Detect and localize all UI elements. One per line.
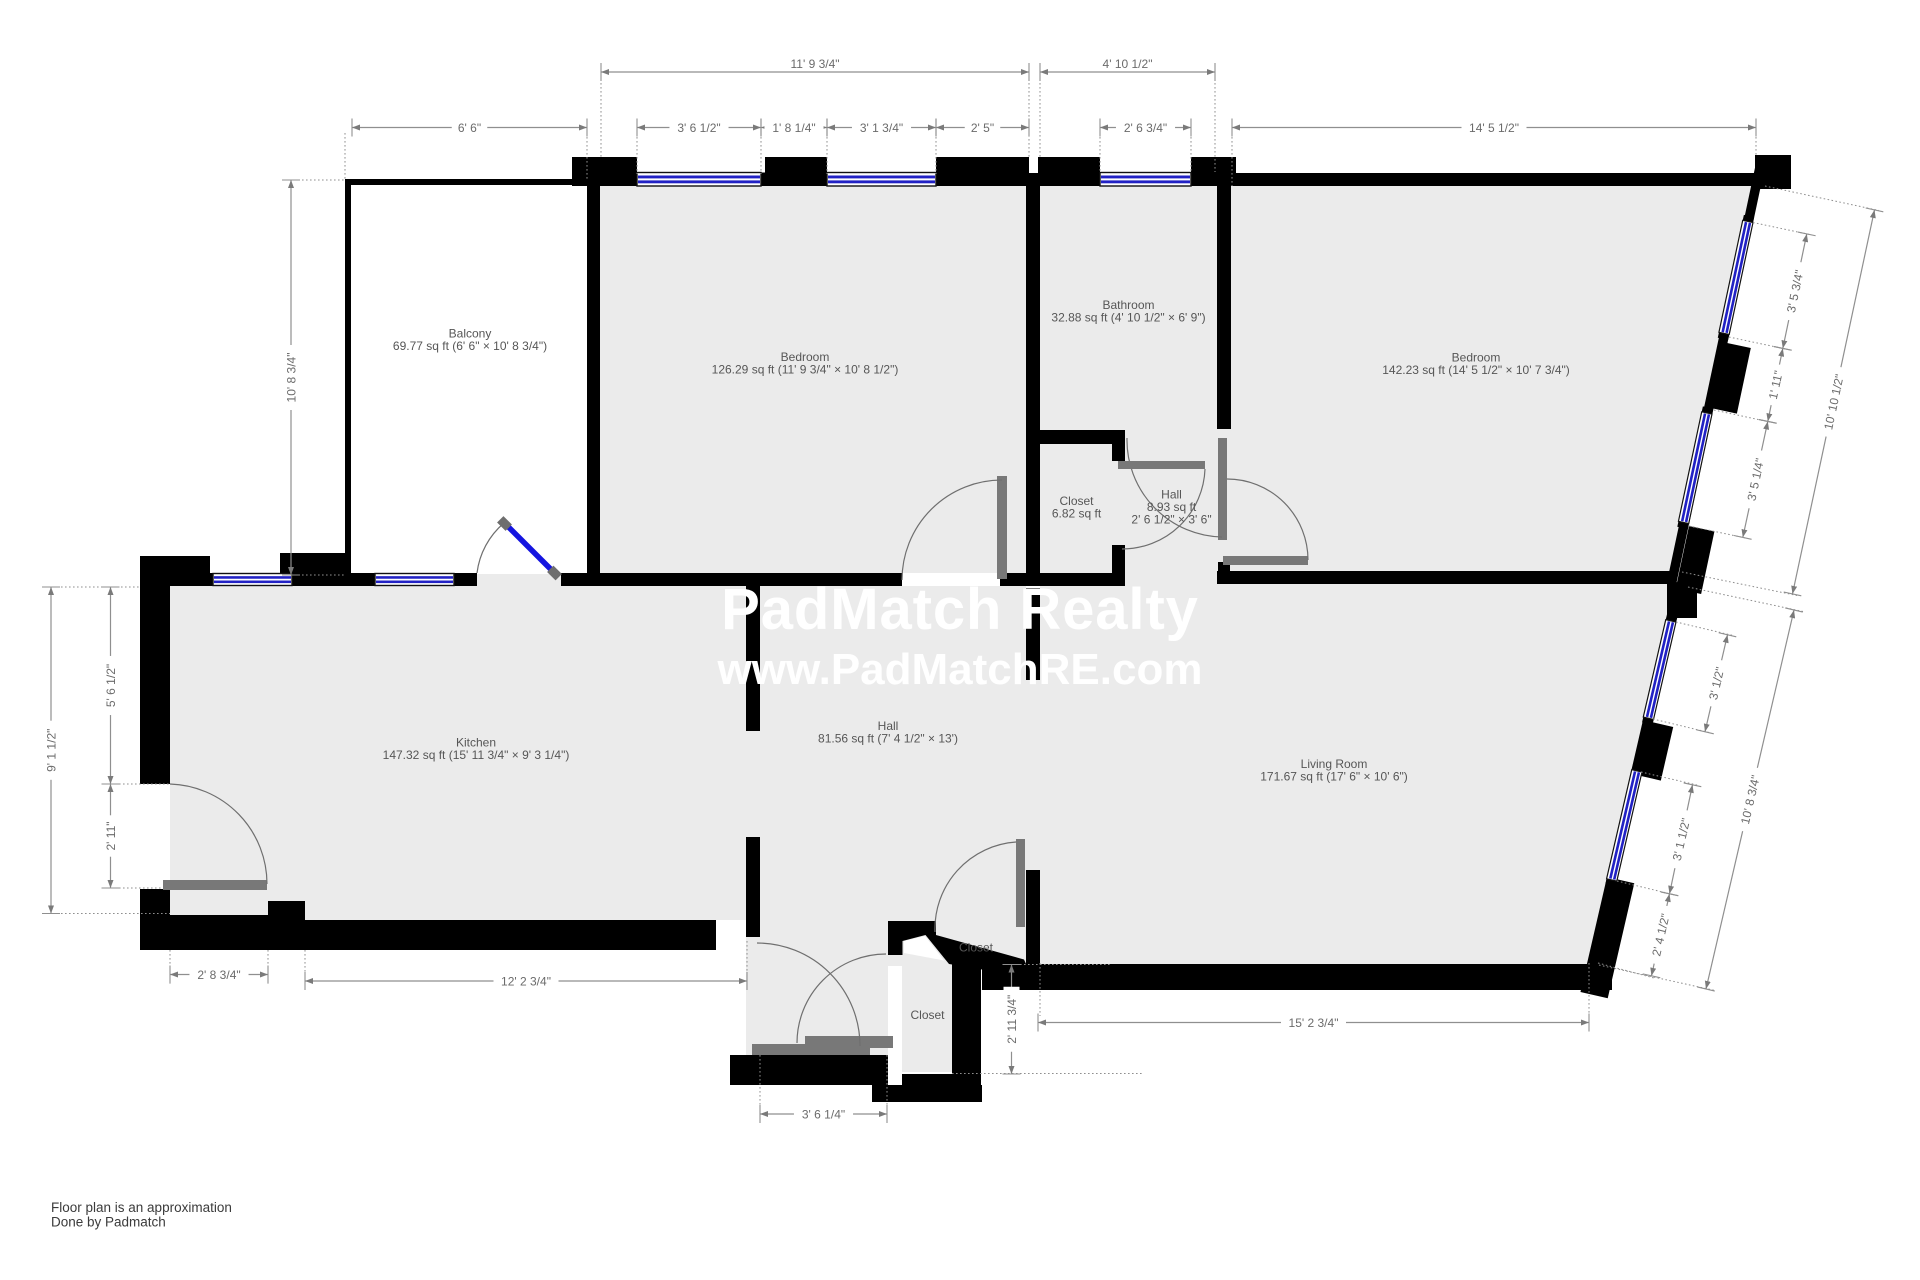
svg-text:69.77 sq ft (6' 6" × 10' 8 3/4: 69.77 sq ft (6' 6" × 10' 8 3/4") [393, 339, 547, 353]
svg-text:2' 11 3/4": 2' 11 3/4" [1005, 995, 1019, 1044]
svg-text:Floor plan is an approximation: Floor plan is an approximation [51, 1200, 232, 1215]
svg-text:32.88 sq ft (4' 10 1/2" × 6' 9: 32.88 sq ft (4' 10 1/2" × 6' 9") [1051, 311, 1205, 325]
svg-text:Done by Padmatch: Done by Padmatch [51, 1215, 166, 1230]
svg-text:6.82 sq ft: 6.82 sq ft [1052, 507, 1102, 521]
svg-text:1' 8 1/4": 1' 8 1/4" [772, 121, 815, 135]
svg-text:2' 8 3/4": 2' 8 3/4" [197, 968, 240, 982]
svg-text:81.56 sq ft (7' 4 1/2" × 13'): 81.56 sq ft (7' 4 1/2" × 13') [818, 732, 958, 746]
svg-text:14' 5 1/2": 14' 5 1/2" [1469, 121, 1519, 135]
svg-text:171.67 sq ft (17' 6" × 10' 6"): 171.67 sq ft (17' 6" × 10' 6") [1260, 770, 1408, 784]
svg-text:6' 6": 6' 6" [458, 121, 481, 135]
svg-text:147.32 sq ft (15' 11 3/4" × 9': 147.32 sq ft (15' 11 3/4" × 9' 3 1/4") [383, 748, 570, 762]
svg-text:11' 9 3/4": 11' 9 3/4" [790, 57, 839, 71]
svg-text:15' 2 3/4": 15' 2 3/4" [1289, 1016, 1339, 1030]
svg-text:Closet: Closet [910, 1008, 945, 1022]
svg-text:3' 6 1/2": 3' 6 1/2" [677, 121, 720, 135]
svg-text:10' 8 3/4": 10' 8 3/4" [285, 353, 299, 403]
svg-text:9' 1 1/2": 9' 1 1/2" [45, 729, 59, 772]
svg-text:3' 1 3/4": 3' 1 3/4" [860, 121, 903, 135]
svg-text:PadMatch Realty: PadMatch Realty [721, 577, 1199, 642]
svg-text:2' 5": 2' 5" [971, 121, 994, 135]
svg-text:Closet: Closet [959, 941, 994, 955]
svg-text:126.29 sq ft (11' 9 3/4" × 10': 126.29 sq ft (11' 9 3/4" × 10' 8 1/2") [712, 363, 899, 377]
svg-text:2' 6 1/2" × 3' 6": 2' 6 1/2" × 3' 6" [1131, 513, 1211, 527]
svg-text:12' 2 3/4": 12' 2 3/4" [501, 975, 551, 989]
svg-text:4' 10 1/2": 4' 10 1/2" [1103, 57, 1153, 71]
svg-text:www.PadMatchRE.com: www.PadMatchRE.com [717, 645, 1203, 694]
svg-text:2' 6 3/4": 2' 6 3/4" [1124, 121, 1167, 135]
svg-text:5' 6 1/2": 5' 6 1/2" [104, 664, 118, 707]
svg-text:2' 11": 2' 11" [104, 821, 118, 850]
svg-text:3' 6 1/4": 3' 6 1/4" [802, 1108, 845, 1122]
svg-text:142.23 sq ft (14' 5 1/2" × 10': 142.23 sq ft (14' 5 1/2" × 10' 7 3/4") [1382, 363, 1570, 377]
